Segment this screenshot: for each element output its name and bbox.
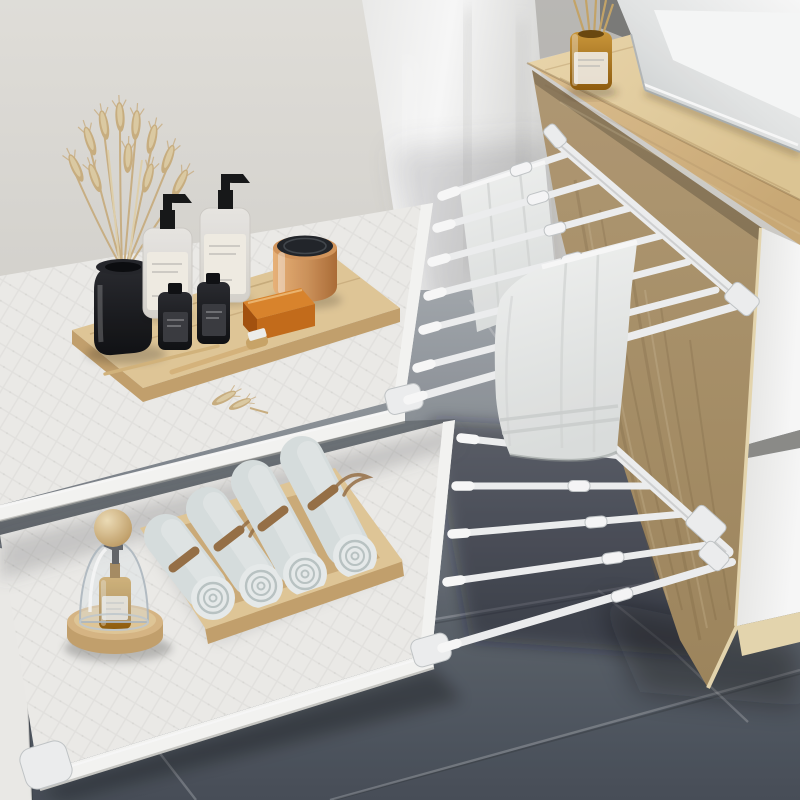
bathroom-scene	[0, 0, 800, 800]
vignette	[0, 0, 800, 800]
product-photo	[0, 0, 800, 800]
